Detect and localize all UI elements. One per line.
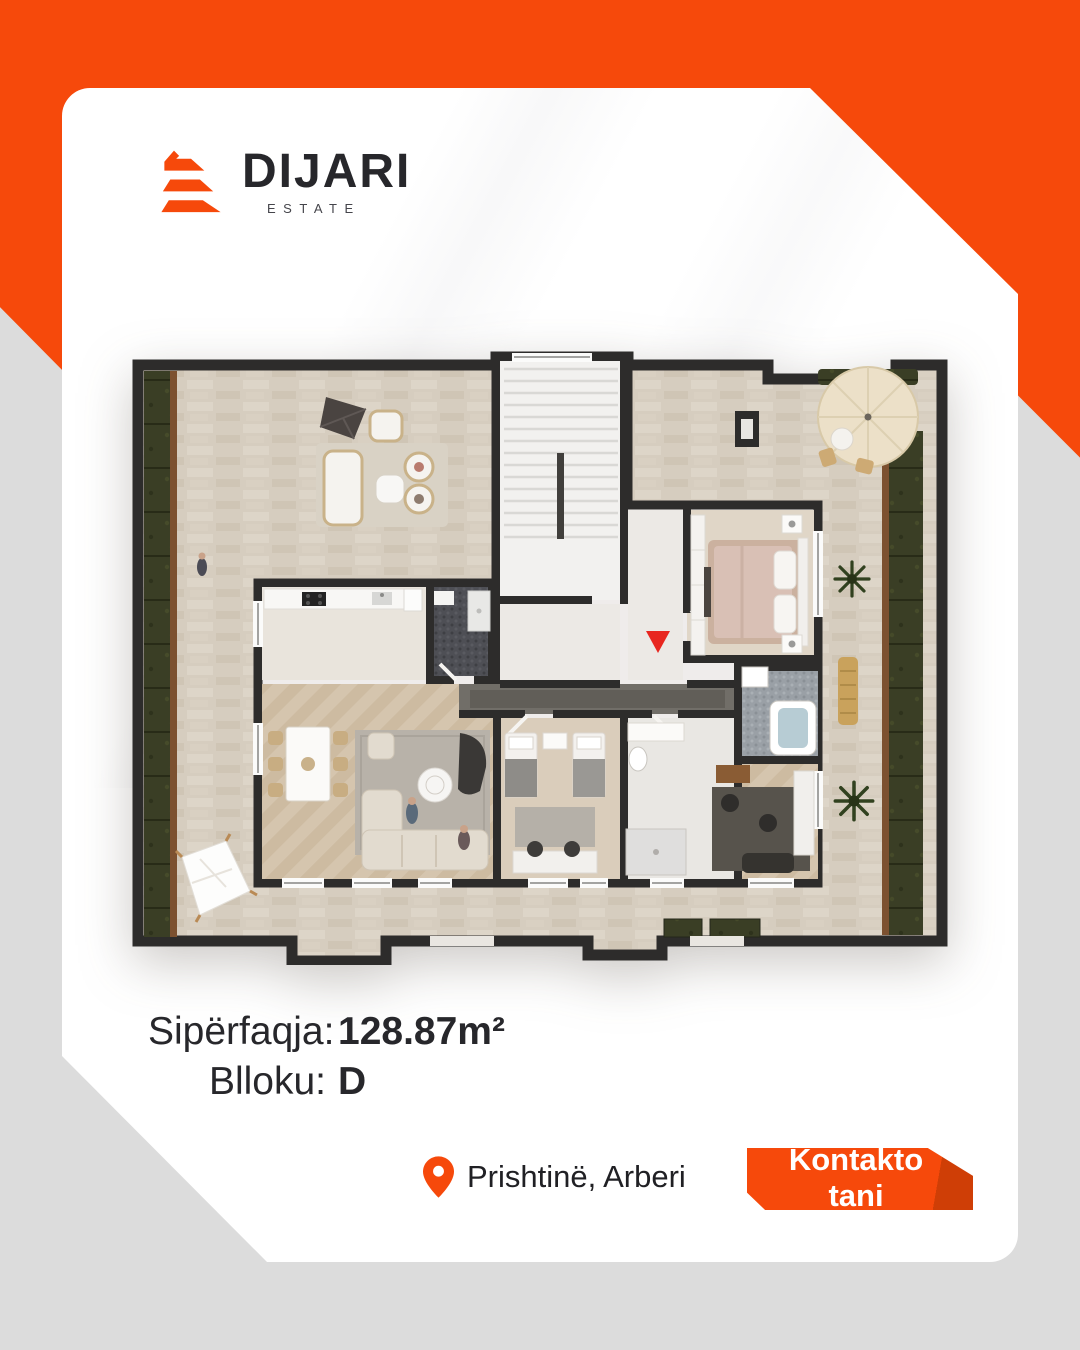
- block-value: D: [338, 1060, 505, 1104]
- hall-floor: [628, 510, 683, 680]
- right-hedge: [889, 431, 923, 935]
- left-hedge: [144, 371, 170, 937]
- poster: DIJARI ESTATE: [0, 0, 1080, 1350]
- stair-rail: [557, 453, 564, 539]
- location-pin-icon: [423, 1156, 454, 1198]
- dijari-logo-icon: [152, 144, 230, 218]
- listing-details: Sipërfaqja: 128.87m² Blloku: D: [148, 1010, 505, 1104]
- living-room: [355, 730, 490, 870]
- floor-plan: [130, 335, 950, 965]
- area-value: 128.87m²: [338, 1010, 505, 1054]
- area-label: Sipërfaqja:: [148, 1010, 326, 1054]
- brand-tagline: ESTATE: [267, 201, 411, 216]
- contact-button[interactable]: Kontakto tani: [747, 1148, 973, 1210]
- right-hedge-planter: [882, 431, 889, 935]
- block-label: Blloku:: [148, 1060, 326, 1104]
- corridor-runner: [470, 690, 725, 708]
- location-row: Prishtinë, Arberi: [423, 1156, 686, 1198]
- entry-hall-floor: [500, 604, 620, 680]
- palm-plant: [835, 562, 869, 596]
- location-text: Prishtinë, Arberi: [467, 1159, 686, 1195]
- dining-set: [268, 727, 348, 801]
- bottom-planter: [710, 919, 760, 937]
- bottom-planter: [664, 919, 702, 937]
- sun-lounger: [838, 657, 858, 725]
- brand-name: DIJARI: [242, 148, 411, 196]
- rooftop-vent: [735, 411, 759, 447]
- shower-drain: [477, 609, 482, 614]
- brand-logo: DIJARI ESTATE: [152, 144, 411, 218]
- palm-plant: [835, 782, 872, 819]
